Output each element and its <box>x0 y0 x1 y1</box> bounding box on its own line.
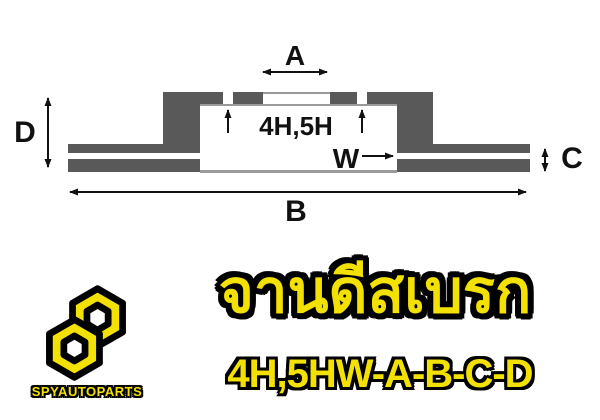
product-title-thai: จานดีสเบรก <box>165 254 585 329</box>
vent-slot-right <box>397 153 530 159</box>
center-bore-gap <box>263 92 330 104</box>
brand-name: SPYAUTOPARTS <box>30 384 144 399</box>
dim-label-a: A <box>275 42 315 70</box>
spyautoparts-logo-icon <box>34 281 138 385</box>
dim-label-w: W <box>326 145 366 173</box>
bolt-pattern-label: 4H,5H <box>246 113 346 139</box>
bolt-hole-right <box>357 92 367 104</box>
brake-disc-product-image: A D C B W 4H,5H SPYAUTOPARTS จานดีสเบรก … <box>0 0 600 420</box>
dim-label-d: D <box>5 118 45 148</box>
spec-code: 4H,5HW-A-B-C-D <box>170 354 590 394</box>
vent-slot-left <box>68 153 200 159</box>
bolt-hole-left <box>223 92 233 104</box>
dim-label-b: B <box>276 197 316 227</box>
dim-label-c: C <box>552 144 592 174</box>
